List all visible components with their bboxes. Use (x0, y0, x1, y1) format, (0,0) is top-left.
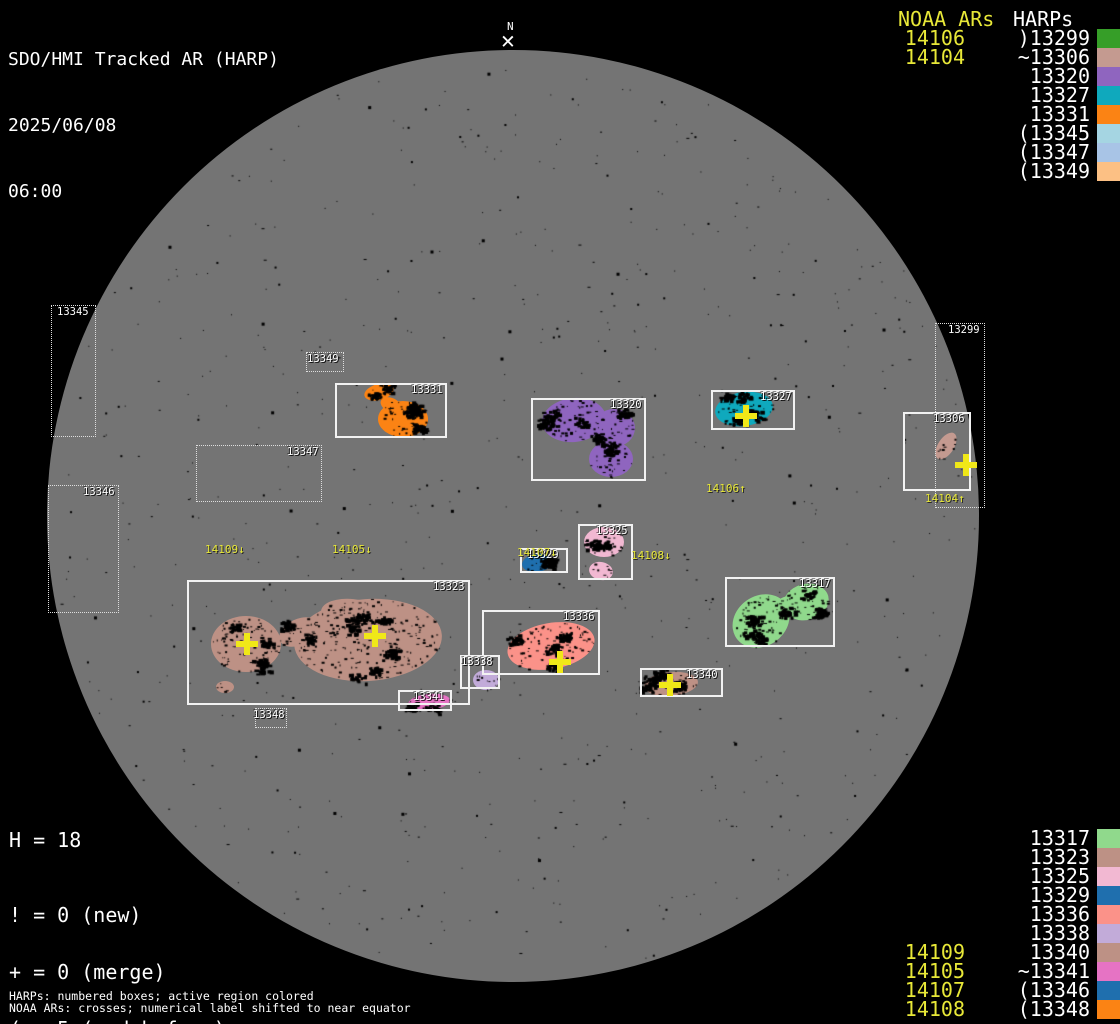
legend-row-13349: (13349 (850, 162, 1120, 181)
harp-color-swatch (1097, 848, 1120, 867)
title-block: SDO/HMI Tracked AR (HARP) 2025/06/08 06:… (8, 5, 279, 247)
obs-time: 06:00 (8, 181, 279, 203)
noaa-ar-number: 14104 (905, 48, 965, 67)
harp-color-swatch (1097, 86, 1120, 105)
harp-label-13347: 13347 (287, 447, 319, 458)
harp-count: H = 18 (9, 831, 81, 850)
harp-tracking-map: 1334513346133471334913299133481330613331… (0, 0, 1120, 1024)
harp-label-13346: 13346 (83, 487, 115, 498)
harp-label-13317: 13317 (799, 579, 831, 590)
harp-color-swatch (1097, 981, 1120, 1000)
harp-color-swatch (1097, 886, 1120, 905)
harp-color-swatch (1097, 124, 1120, 143)
harp-color-swatch (1097, 867, 1120, 886)
harp-number: (13348 (1018, 1000, 1090, 1019)
harp-label-13341: 13341 (413, 692, 445, 703)
harp-list-top: 14106)1329914104~13306133201332713331(13… (850, 29, 1120, 181)
harp-number: (13349 (1018, 162, 1090, 181)
harp-label-13348: 13348 (253, 710, 285, 721)
harp-label-13323: 13323 (433, 582, 465, 593)
harp-color-swatch (1097, 48, 1120, 67)
harp-label-13349: 13349 (307, 354, 339, 365)
harp-color-swatch (1097, 962, 1120, 981)
legend-row-13348: 14108(13348 (850, 1000, 1120, 1019)
harp-color-swatch (1097, 829, 1120, 848)
app-title: SDO/HMI Tracked AR (HARP) (8, 49, 279, 71)
footnote-noaa: NOAA ARs: crosses; numerical label shift… (9, 1002, 411, 1014)
harp-box-13346 (48, 485, 119, 613)
noaa-shifted-label-14107: 14107↓ (517, 547, 557, 559)
harp-color-swatch (1097, 943, 1120, 962)
harp-label-13338: 13338 (461, 657, 493, 668)
harp-label-13320: 13320 (610, 400, 642, 411)
harp-color-swatch (1097, 924, 1120, 943)
harp-color-swatch (1097, 143, 1120, 162)
harp-label-13306: 13306 (933, 414, 965, 425)
harp-label-13299: 13299 (948, 325, 980, 336)
harp-label-13345: 13345 (57, 307, 89, 318)
harp-color-swatch (1097, 905, 1120, 924)
symbol-new: ! = 0 (new) (9, 906, 238, 925)
noaa-ar-number: 14108 (905, 1000, 965, 1019)
harp-label-13340: 13340 (686, 670, 718, 681)
noaa-shifted-label-14106: 14106↑ (706, 483, 746, 495)
harp-label-13327: 13327 (760, 392, 792, 403)
noaa-shifted-label-14105: 14105↓ (332, 544, 372, 556)
harp-label-13336: 13336 (563, 612, 595, 623)
harp-color-swatch (1097, 29, 1120, 48)
harp-color-swatch (1097, 67, 1120, 86)
harp-color-swatch (1097, 105, 1120, 124)
obs-date: 2025/06/08 (8, 115, 279, 137)
harp-color-swatch (1097, 162, 1120, 181)
harp-label-13331: 13331 (411, 385, 443, 396)
noaa-shifted-label-14109: 14109↓ (205, 544, 245, 556)
north-cross-icon: ✕ (501, 30, 515, 53)
noaa-shifted-label-14108: 14108↓ (631, 550, 671, 562)
harp-color-swatch (1097, 1000, 1120, 1019)
symbol-pad-before: ( = 5 (pad before) (9, 1020, 238, 1024)
harp-box-13323 (187, 580, 470, 705)
harp-box-13345 (51, 305, 96, 437)
noaa-shifted-label-14104: 14104↑ (925, 493, 965, 505)
harp-list-bottom: 1331713323133251332913336133381410913340… (850, 829, 1120, 1019)
harp-label-13325: 13325 (596, 526, 628, 537)
symbol-merge: + = 0 (merge) (9, 963, 238, 982)
